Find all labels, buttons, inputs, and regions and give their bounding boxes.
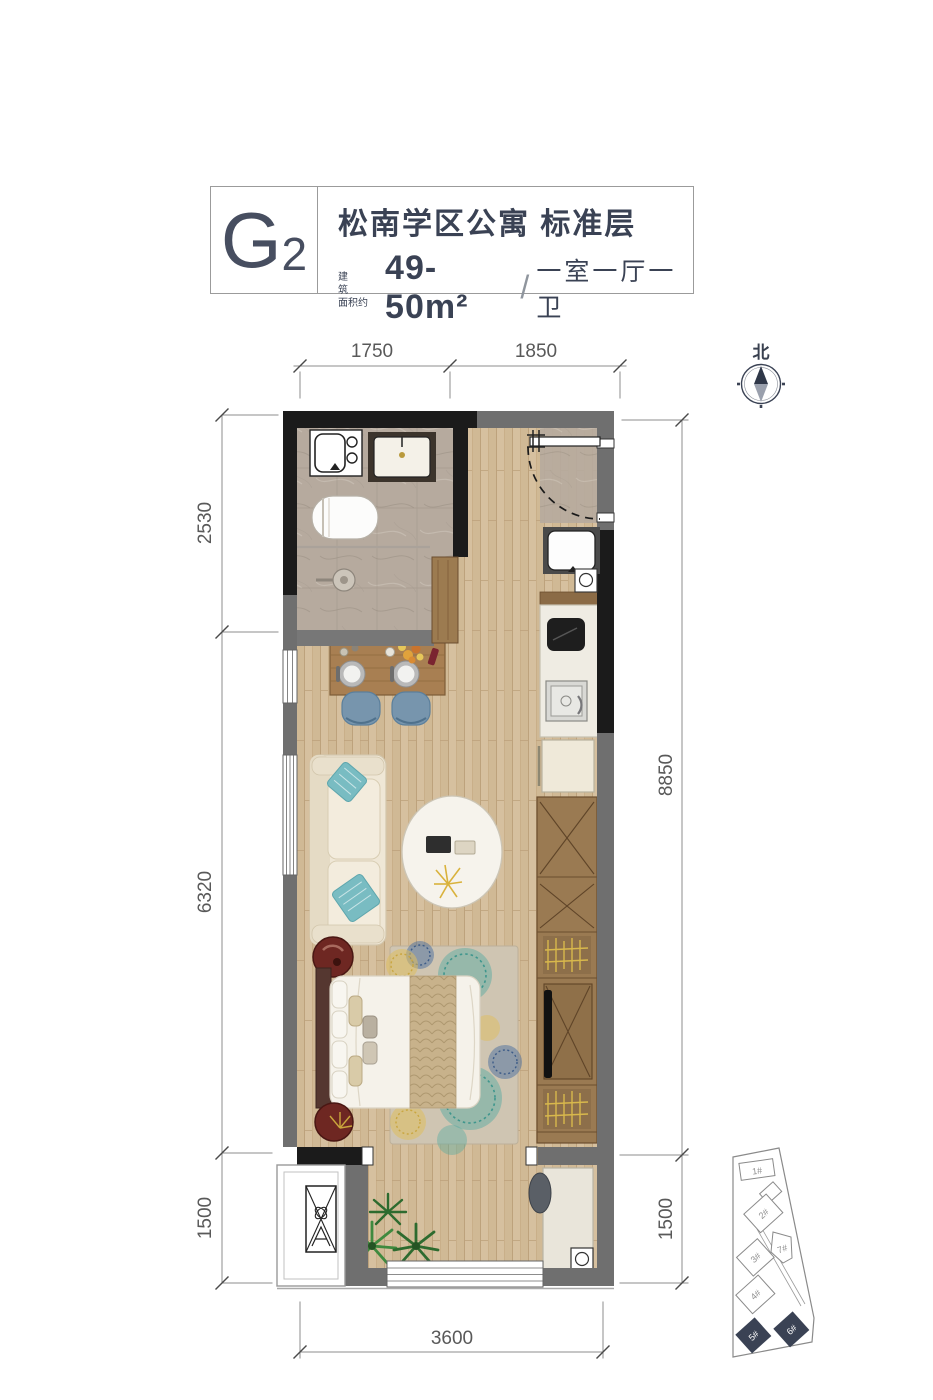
dim-bottom-0: 3600: [431, 1328, 473, 1349]
north-label: 北: [753, 343, 770, 362]
sofa: [310, 755, 386, 945]
ac-platform: [277, 1165, 345, 1286]
floorplan-page: G2 松南学区公寓 标准层 建 筑 面积约 49-50m² / 一室一厅一卫: [0, 0, 933, 1400]
fridge: [539, 740, 594, 792]
dim-right-1: 1500: [656, 1198, 677, 1240]
compass-needle-north: [754, 366, 768, 384]
desk-chair: [529, 1173, 551, 1213]
site-plan: 1# 2# 7# 3# 4# 5#: [733, 1148, 814, 1357]
nightstand-foot: [315, 1103, 353, 1141]
floor-plan-canvas: 1750 1850 2530 6320 1500: [0, 0, 933, 1400]
kitchen-counter: [540, 592, 600, 737]
dim-left-0: 2530: [195, 502, 216, 544]
toilet: [312, 496, 378, 539]
dim-bottom: 3600: [294, 1302, 609, 1358]
ac-unit-icon: [306, 1186, 336, 1252]
compass-needle-south: [754, 384, 768, 402]
tv: [544, 990, 552, 1078]
dim-right-0: 8850: [656, 754, 677, 796]
cooktop: [547, 618, 585, 651]
kitchen-sink: [546, 681, 587, 721]
bathroom-door: [432, 557, 458, 643]
dim-top-0: 1750: [351, 341, 393, 362]
laundry-machine: [310, 430, 362, 476]
window-left-living: [283, 755, 297, 875]
vanity-sink: [368, 432, 436, 482]
dim-right: 8850 1500: [620, 414, 688, 1289]
window-balcony: [387, 1261, 543, 1287]
dim-top: 1750 1850: [294, 341, 626, 398]
coffee-table: [402, 796, 502, 908]
svg-text:1#: 1#: [751, 1165, 762, 1176]
window-left-small: [283, 650, 297, 703]
dim-left: 2530 6320 1500: [195, 409, 278, 1289]
dim-top-1: 1850: [515, 341, 557, 362]
dim-left-1: 6320: [195, 871, 216, 913]
dining-table: [330, 642, 445, 695]
compass: 北: [737, 343, 785, 408]
bed: [316, 968, 480, 1108]
dim-left-2: 1500: [195, 1197, 216, 1239]
wardrobe: [537, 797, 597, 1143]
